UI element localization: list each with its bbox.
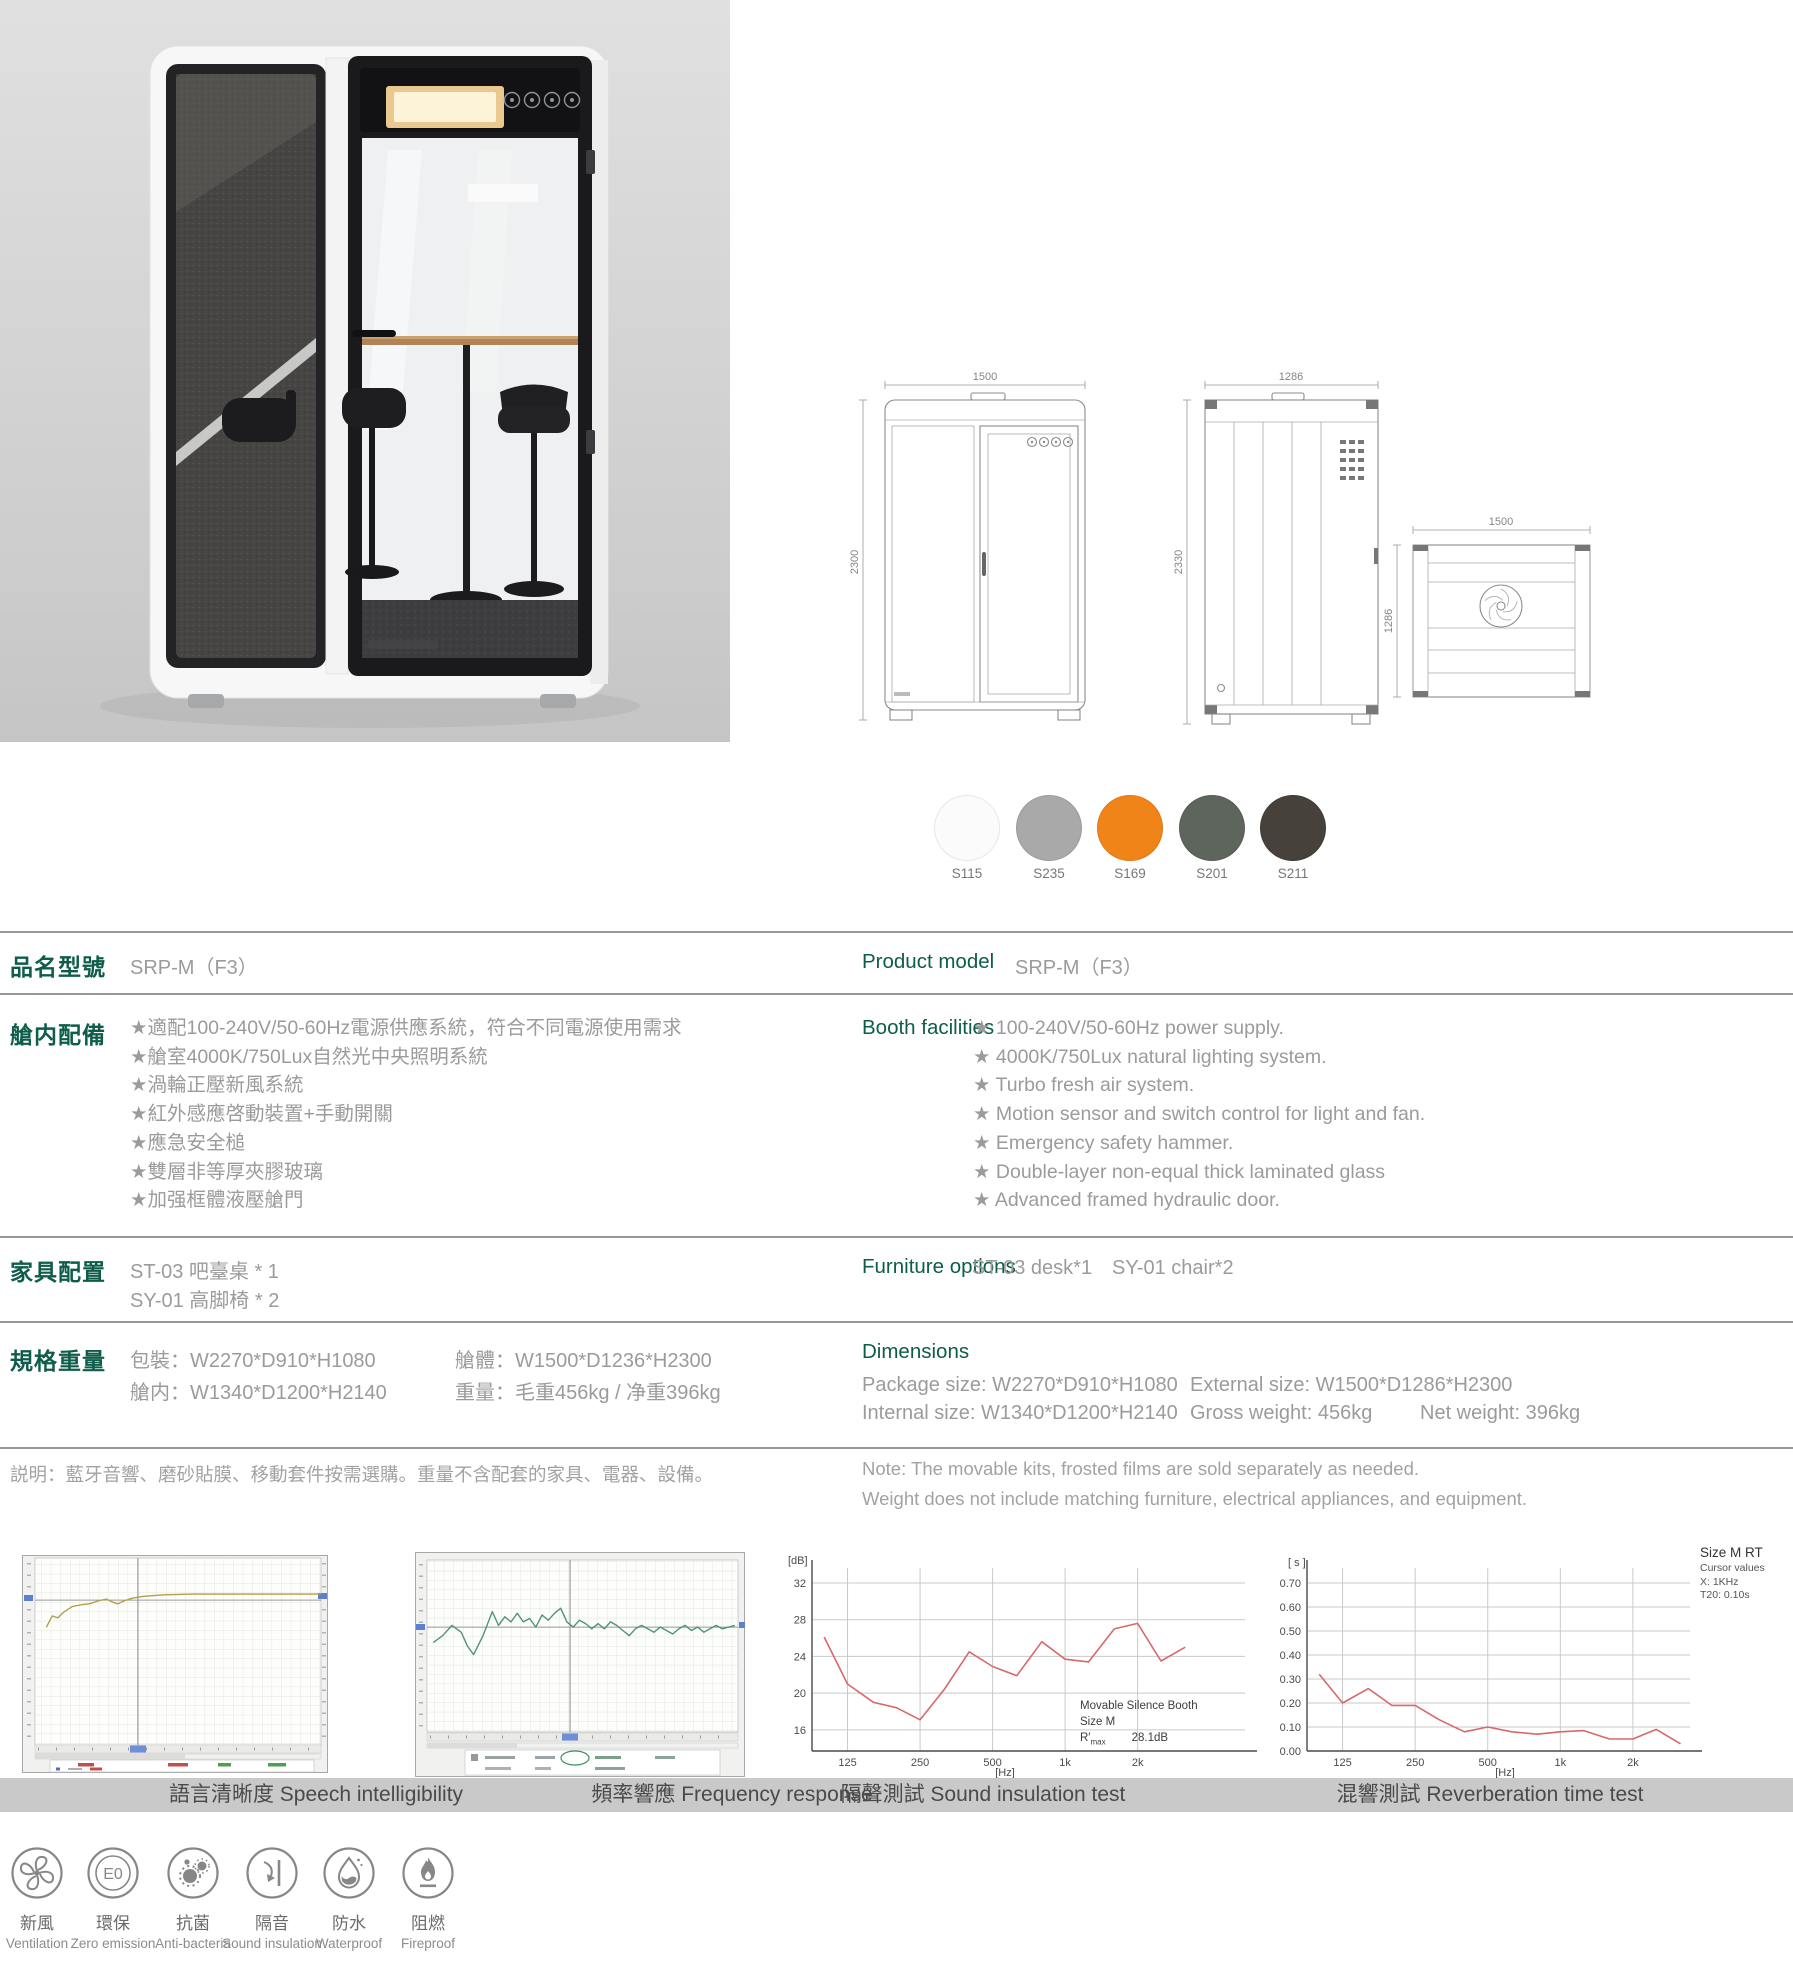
divider [0,931,1793,933]
facility-item: ★雙層非等厚夾膠玻璃 [130,1158,682,1187]
color-swatch-s201 [1179,795,1245,861]
dim-net-en: Net weight: 396kg [1420,1402,1580,1425]
booth-left-acoustic-panel [166,64,326,668]
annotation-line: Size M [1080,1714,1198,1730]
product-photo [0,0,730,742]
svg-text:0.00: 0.00 [1280,1746,1301,1758]
svg-text:125: 125 [838,1757,856,1769]
spec-weight-cn: 重量：毛重456kg / 净重396kg [455,1376,721,1405]
analyzer-legend [50,1760,314,1772]
front-width-dim: 1500 [973,371,997,383]
divider [0,993,1793,995]
svg-text:24: 24 [794,1651,806,1663]
facility-item: ★ 100-240V/50-60Hz power supply. [973,1014,1425,1043]
facility-item: ★紅外感應啓動裝置+手動開關 [130,1100,682,1129]
chart-speech-intelligibility [22,1555,328,1773]
facility-item: ★ 4000K/750Lux natural lighting system. [973,1043,1425,1072]
side-width-dim: 1286 [1279,371,1303,383]
booth-glass-door [342,56,595,676]
booth-mullion [326,58,348,674]
swatch-label: S201 [1179,866,1245,881]
note-en-line1: Note: The movable kits, frosted films ar… [862,1458,1419,1480]
svg-text:0.40: 0.40 [1280,1650,1301,1662]
caption-speech-intelligibility: 語言清晰度 Speech intelligibility [169,1778,463,1812]
specs-label-cn: 規格重量 [10,1342,106,1376]
facilities-list-en: ★ 100-240V/50-60Hz power supply. ★ 4000K… [973,1014,1425,1215]
dimension-lines [859,381,1085,720]
legend-line: T20: 0.10s [1700,1589,1765,1603]
annotation-line: Movable Silence Booth [1080,1698,1198,1714]
model-label-cn: 品名型號 [10,948,106,982]
technical-drawings: 1500 2300 [740,290,1793,740]
svg-text:[dB]: [dB] [788,1555,808,1567]
chart-insulation-annotation: Movable Silence Booth Size M R′max28.1dB [1080,1698,1198,1750]
swatch-label: S115 [934,866,1000,881]
svg-text:32: 32 [794,1578,806,1590]
facility-item: ★加强框體液壓艙門 [130,1186,682,1215]
color-swatch-s211 [1260,795,1326,861]
facility-item: ★ Motion sensor and switch control for l… [973,1100,1425,1129]
svg-text:1k: 1k [1555,1757,1567,1769]
svg-text:0.70: 0.70 [1280,1578,1301,1590]
facility-item: ★ Double-layer non-equal thick laminated… [973,1158,1425,1187]
dim-gross-en: Gross weight: 456kg [1190,1402,1372,1425]
svg-text:16: 16 [794,1725,806,1737]
furniture-item-en: ST-03 desk*1 [972,1257,1092,1280]
facility-item: ★艙室4000K/750Lux自然光中央照明系統 [130,1043,682,1072]
badge-fireproof: 阻燃 Fireproof [373,1845,483,1951]
caption-frequency-response: 頻率響應 Frequency response [591,1778,872,1812]
product-spec-sheet: 1500 2300 [0,0,1793,1961]
drawing-front-view: 1500 2300 [849,371,1085,720]
spec-internal-cn: 艙内：W1340*D1200*H2140 [130,1376,387,1405]
facilities-label-cn: 艙内配備 [10,1016,106,1050]
divider [0,1321,1793,1323]
divider [0,1447,1793,1449]
facilities-list-cn: ★適配100-240V/50-60Hz電源供應系統，符合不同電源使用需求 ★艙室… [130,1014,682,1215]
chart-frequency-response [415,1552,745,1777]
facility-item: ★ Emergency safety hammer. [973,1129,1425,1158]
vent-grid [1340,440,1364,480]
color-swatch-s115 [934,795,1000,861]
fan-icon [9,1845,65,1901]
note-en-line2: Weight does not include matching furnitu… [862,1488,1527,1510]
swatch-label: S211 [1260,866,1326,881]
svg-text:2k: 2k [1627,1757,1639,1769]
svg-text:250: 250 [1406,1757,1424,1769]
drawing-top-view: 1500 1286 [1383,516,1590,697]
sound-insulation-icon [244,1845,300,1901]
facility-item: ★適配100-240V/50-60Hz電源供應系統，符合不同電源使用需求 [130,1014,682,1043]
color-swatch-s169 [1097,795,1163,861]
booth-foot [188,694,224,708]
svg-text:250: 250 [911,1757,929,1769]
booth-foot [540,694,576,708]
furniture-item-cn: SY-01 高脚椅 * 2 [130,1284,279,1313]
door-control-panel [360,68,580,132]
model-label-en: Product model [862,950,994,974]
svg-text:E0: E0 [103,1866,123,1883]
swatch-label: S235 [1016,866,1082,881]
caption-sound-insulation: 隔聲測試 Sound insulation test [841,1778,1126,1812]
swatch-label: S169 [1097,866,1163,881]
door-handle [352,330,396,337]
facility-item: ★應急安全槌 [130,1129,682,1158]
dim-package-en: Package size: W2270*D910*H1080 [862,1374,1178,1397]
svg-text:0.60: 0.60 [1280,1602,1301,1614]
drawing-side-view: 1286 2330 [1173,371,1378,724]
svg-text:0.10: 0.10 [1280,1722,1301,1734]
model-value-en: SRP-M（F3） [1015,951,1143,980]
svg-text:500: 500 [1479,1757,1497,1769]
annotation-line: R′max28.1dB [1080,1730,1198,1750]
svg-text:1k: 1k [1059,1757,1071,1769]
svg-text:0.50: 0.50 [1280,1626,1301,1638]
furniture-label-cn: 家具配置 [10,1253,106,1287]
caption-reverberation-time: 混響測試 Reverberation time test [1337,1778,1644,1812]
furniture-item-en: SY-01 chair*2 [1112,1257,1234,1280]
facility-item: ★ Turbo fresh air system. [973,1071,1425,1100]
svg-text:20: 20 [794,1688,806,1700]
top-depth-dim: 1286 [1383,609,1395,633]
waterproof-icon [321,1845,377,1901]
spec-package-cn: 包裝：W2270*D910*H1080 [130,1344,376,1373]
model-value-cn: SRP-M（F3） [130,951,258,980]
facility-item: ★渦輪正壓新風系統 [130,1071,682,1100]
fireproof-icon [400,1845,456,1901]
analyzer-legend [465,1750,720,1775]
svg-text:28: 28 [794,1615,806,1627]
svg-text:125: 125 [1333,1757,1351,1769]
top-width-dim: 1500 [1489,516,1513,528]
front-height-dim: 2300 [849,550,861,574]
chart-reverb-legend: Size M RT Cursor values X: 1KHz T20: 0.1… [1700,1545,1765,1603]
fan-drawing [1480,585,1522,627]
spec-body-cn: 艙體：W1500*D1236*H2300 [455,1344,712,1373]
e0-icon: E0 [85,1845,141,1901]
dim-external-en: External size: W1500*D1286*H2300 [1190,1374,1512,1397]
legend-line: X: 1KHz [1700,1576,1765,1590]
color-swatch-s235 [1016,795,1082,861]
svg-text:2k: 2k [1132,1757,1144,1769]
facility-item: ★ Advanced framed hydraulic door. [973,1186,1425,1215]
divider [0,1236,1793,1238]
bacteria-icon [165,1845,221,1901]
legend-line: Size M RT [1700,1545,1765,1560]
dim-internal-en: Internal size: W1340*D1200*H2140 [862,1402,1178,1425]
furniture-item-cn: ST-03 吧臺桌 * 1 [130,1255,279,1284]
side-height-dim: 2330 [1173,550,1185,574]
svg-text:0.20: 0.20 [1280,1698,1301,1710]
svg-text:[ s ]: [ s ] [1288,1557,1306,1569]
legend-line: Cursor values [1700,1562,1765,1576]
dimensions-heading-en: Dimensions [862,1340,969,1364]
note-cn: 説明：藍牙音響、磨砂貼膜、移動套件按需選購。重量不含配套的家具、電器、設備。 [10,1461,713,1487]
svg-text:0.30: 0.30 [1280,1674,1301,1686]
